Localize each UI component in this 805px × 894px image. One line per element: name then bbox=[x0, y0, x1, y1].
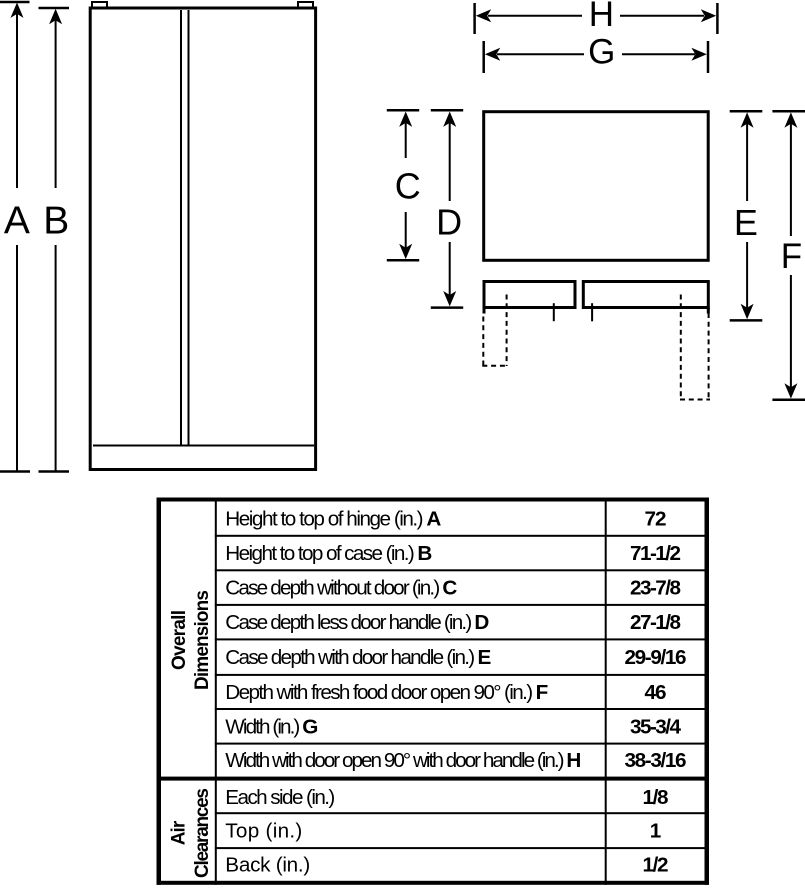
svg-text:Width (in.) G: Width (in.) G bbox=[225, 715, 318, 738]
svg-text:Case depth less door handle (i: Case depth less door handle (in.) D bbox=[225, 611, 489, 634]
svg-text:D: D bbox=[436, 201, 462, 242]
svg-text:71-1/2: 71-1/2 bbox=[630, 542, 681, 565]
svg-text:72: 72 bbox=[645, 508, 667, 531]
svg-text:G: G bbox=[588, 33, 615, 72]
svg-text:B: B bbox=[43, 200, 69, 243]
svg-text:Air: Air bbox=[169, 820, 190, 845]
svg-text:Dimensions: Dimensions bbox=[192, 590, 213, 690]
svg-text:E: E bbox=[734, 202, 758, 243]
svg-text:23-7/8: 23-7/8 bbox=[630, 577, 681, 600]
svg-text:Height to top of case (in.) B: Height to top of case (in.) B bbox=[225, 542, 432, 565]
svg-text:29-9/16: 29-9/16 bbox=[625, 646, 687, 669]
svg-text:Each side (in.): Each side (in.) bbox=[225, 786, 335, 809]
svg-text:Overall: Overall bbox=[169, 610, 190, 670]
svg-text:A: A bbox=[4, 200, 30, 243]
svg-text:27-1/8: 27-1/8 bbox=[630, 611, 681, 634]
svg-text:Clearances: Clearances bbox=[192, 788, 213, 878]
svg-text:38-3/16: 38-3/16 bbox=[625, 749, 687, 772]
svg-text:Case depth without door (in.): Case depth without door (in.) C bbox=[225, 577, 457, 600]
svg-text:Back (in.): Back (in.) bbox=[225, 854, 310, 877]
svg-text:Case depth with door handle (i: Case depth with door handle (in.) E bbox=[225, 646, 491, 669]
svg-text:1/2: 1/2 bbox=[643, 854, 669, 877]
svg-text:Depth with fresh food door ope: Depth with fresh food door open 90° (in.… bbox=[225, 681, 548, 704]
svg-text:F: F bbox=[781, 237, 802, 276]
svg-text:1: 1 bbox=[650, 820, 662, 843]
svg-text:35-3/4: 35-3/4 bbox=[630, 715, 681, 738]
svg-text:C: C bbox=[395, 166, 421, 207]
svg-text:Top (in.): Top (in.) bbox=[225, 820, 302, 843]
svg-text:1/8: 1/8 bbox=[643, 786, 669, 809]
svg-text:Width with door open 90° with: Width with door open 90° with door handl… bbox=[225, 749, 581, 772]
svg-text:Height to top of hinge (in.) A: Height to top of hinge (in.) A bbox=[225, 508, 441, 531]
svg-text:H: H bbox=[589, 0, 614, 34]
svg-text:46: 46 bbox=[645, 681, 667, 704]
